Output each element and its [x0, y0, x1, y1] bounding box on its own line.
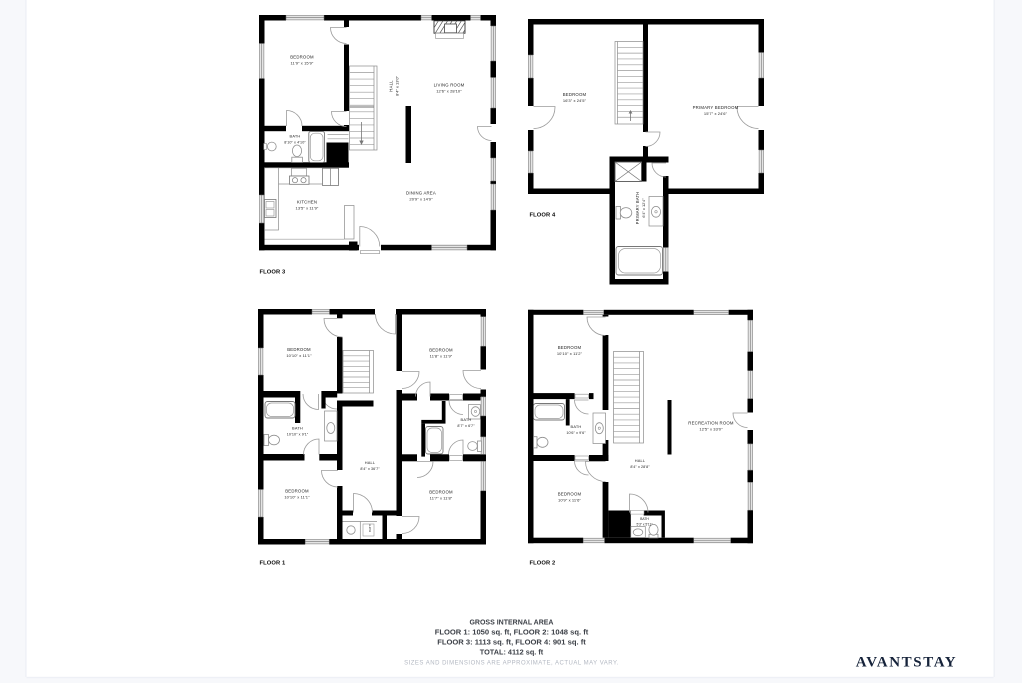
svg-text:10'10" x 9'1": 10'10" x 9'1"	[287, 433, 309, 437]
svg-text:13'5" x 11'9": 13'5" x 11'9"	[296, 206, 319, 211]
svg-text:BEDROOM: BEDROOM	[558, 345, 582, 350]
svg-text:10'10" x 11'1": 10'10" x 11'1"	[286, 353, 312, 358]
svg-text:10'6" x 9'6": 10'6" x 9'6"	[566, 431, 586, 435]
svg-text:8'7" x 6'7": 8'7" x 6'7"	[457, 424, 475, 428]
svg-text:HALL: HALL	[635, 458, 646, 463]
svg-text:BEDROOM: BEDROOM	[429, 348, 453, 353]
svg-text:BATH: BATH	[640, 517, 649, 521]
svg-text:TOTAL: 4112 sq. ft: TOTAL: 4112 sq. ft	[480, 648, 544, 657]
svg-text:10'9" x 11'6": 10'9" x 11'6"	[558, 498, 581, 503]
svg-text:8'4" x 36'7": 8'4" x 36'7"	[360, 467, 380, 471]
svg-text:FLOOR 4: FLOOR 4	[530, 213, 556, 219]
svg-text:BATH: BATH	[290, 134, 301, 139]
svg-text:10'10" x 11'1": 10'10" x 11'1"	[284, 495, 310, 500]
svg-text:BATH: BATH	[368, 524, 372, 532]
svg-text:FLOOR 3: 1113 sq. ft, FLOOR 4:: FLOOR 3: 1113 sq. ft, FLOOR 4: 901 sq. f…	[437, 638, 586, 647]
svg-text:16'3" x 24'5": 16'3" x 24'5"	[563, 98, 587, 103]
svg-text:BEDROOM: BEDROOM	[287, 347, 311, 352]
svg-text:RECREATION ROOM: RECREATION ROOM	[688, 421, 734, 426]
svg-text:DINING AREA: DINING AREA	[406, 191, 436, 196]
svg-text:10'10" x 11'2": 10'10" x 11'2"	[557, 351, 583, 356]
svg-text:11'8" x 11'9": 11'8" x 11'9"	[430, 354, 453, 359]
svg-text:12'6" x 28'10": 12'6" x 28'10"	[436, 89, 462, 94]
svg-text:HALL: HALL	[365, 460, 376, 465]
svg-text:LIVING ROOM: LIVING ROOM	[434, 83, 465, 88]
svg-text:KITCHEN: KITCHEN	[297, 200, 317, 205]
svg-text:11'9" x 15'9": 11'9" x 15'9"	[291, 61, 314, 66]
svg-text:AVANTSTAY: AVANTSTAY	[856, 655, 957, 671]
svg-text:BEDROOM: BEDROOM	[285, 489, 309, 494]
svg-text:8'4" x 13'0": 8'4" x 13'0"	[395, 76, 400, 96]
svg-text:12'5" x 33'0": 12'5" x 33'0"	[699, 427, 723, 432]
svg-text:PRIMARY BATH: PRIMARY BATH	[635, 192, 640, 225]
svg-text:BEDROOM: BEDROOM	[290, 55, 314, 60]
svg-text:BATH: BATH	[292, 426, 303, 431]
svg-text:15'7" x 24'6": 15'7" x 24'6"	[704, 111, 728, 116]
svg-text:5'3" x 5'11": 5'3" x 5'11"	[636, 523, 653, 527]
svg-text:20'9" x 14'9": 20'9" x 14'9"	[409, 197, 433, 202]
svg-text:BEDROOM: BEDROOM	[563, 92, 587, 97]
svg-text:SIZES AND DIMENSIONS ARE APPRO: SIZES AND DIMENSIONS ARE APPROXIMATE, AC…	[404, 661, 619, 667]
svg-text:FLOOR 1: FLOOR 1	[260, 561, 286, 567]
svg-text:6'4" x 12'4": 6'4" x 12'4"	[641, 198, 646, 218]
svg-text:PRIMARY BEDROOM: PRIMARY BEDROOM	[693, 105, 739, 110]
svg-text:FLOOR 3: FLOOR 3	[260, 270, 286, 276]
svg-text:HALL: HALL	[389, 80, 394, 92]
svg-text:8'4" x 28'8": 8'4" x 28'8"	[630, 465, 650, 469]
svg-text:BATH: BATH	[461, 417, 472, 422]
svg-text:11'7" x 11'8": 11'7" x 11'8"	[430, 496, 453, 501]
svg-text:FLOOR 2: FLOOR 2	[530, 561, 556, 567]
svg-text:FLOOR 1: 1050 sq. ft, FLOOR 2:: FLOOR 1: 1050 sq. ft, FLOOR 2: 1048 sq. …	[435, 628, 589, 637]
svg-text:BEDROOM: BEDROOM	[429, 490, 453, 495]
svg-text:BATH: BATH	[571, 424, 582, 429]
svg-text:GROSS INTERNAL AREA: GROSS INTERNAL AREA	[469, 620, 553, 627]
svg-text:8'10" x 4'10": 8'10" x 4'10"	[284, 141, 306, 145]
svg-text:BEDROOM: BEDROOM	[558, 492, 582, 497]
